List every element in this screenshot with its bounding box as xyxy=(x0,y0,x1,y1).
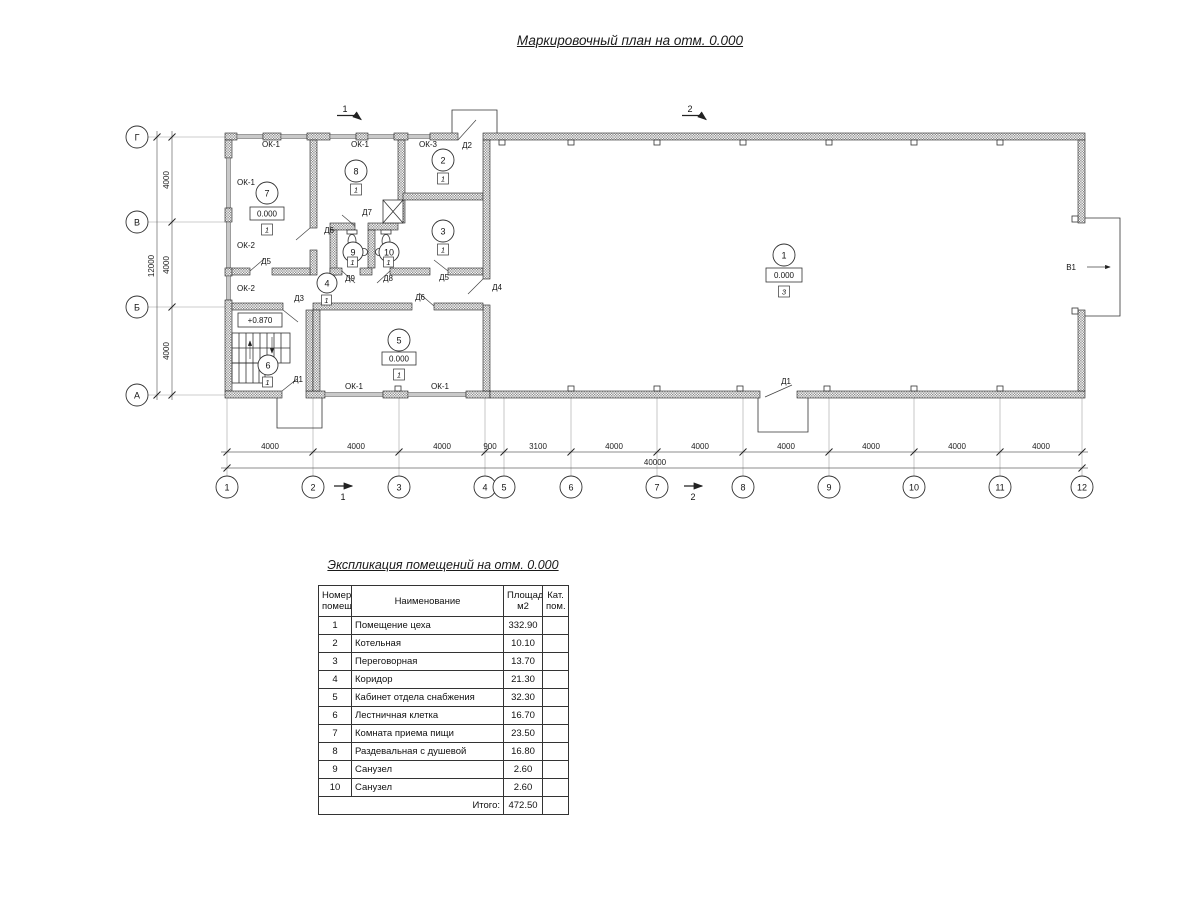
window-label-ok1: ОК-1 xyxy=(345,382,364,391)
dim-1-2: 4000 xyxy=(261,442,279,451)
dim-8-9: 4000 xyxy=(777,442,795,451)
room-area: 23.50 xyxy=(504,725,543,743)
room-name: Санузел xyxy=(352,761,504,779)
table-title: Экспликация помещений на отм. 0.000 xyxy=(318,558,568,572)
axis-5: 5 xyxy=(501,483,506,493)
door-label-d2: Д2 xyxy=(462,141,472,150)
toilet-icon xyxy=(347,230,357,234)
room-name: Помещение цеха xyxy=(352,617,504,635)
gate-b1: В1 xyxy=(1066,263,1110,272)
room-cat xyxy=(543,707,569,725)
room-cat xyxy=(543,689,569,707)
dim-11-12: 4000 xyxy=(1032,442,1050,451)
room-name: Коридор xyxy=(352,671,504,689)
axis-6: 6 xyxy=(568,483,573,493)
room-name: Котельная xyxy=(352,635,504,653)
dim-total: 40000 xyxy=(644,458,667,467)
axis-g: Г xyxy=(135,133,140,143)
room-7-elevation: 0.000 xyxy=(257,210,278,219)
porch-hall-outline xyxy=(758,398,808,432)
room-3-category: 1 xyxy=(441,246,445,255)
room-num: 3 xyxy=(319,653,352,671)
room-name: Санузел xyxy=(352,779,504,797)
room-2-category: 1 xyxy=(441,175,445,184)
table-row: 6Лестничная клетка16.70 xyxy=(319,707,569,725)
room-7-category: 1 xyxy=(265,226,269,235)
window-label-ok1: ОК-1 xyxy=(262,140,281,149)
dim-4-5: 900 xyxy=(483,442,497,451)
room-area: 2.60 xyxy=(504,779,543,797)
dim-5-6: 3100 xyxy=(529,442,547,451)
room-area: 13.70 xyxy=(504,653,543,671)
window-label-ok2: ОК-2 xyxy=(237,284,256,293)
room-4-category: 1 xyxy=(324,296,328,305)
table-row: 9Санузел2.60 xyxy=(319,761,569,779)
door-label-d6: Д6 xyxy=(324,226,334,235)
dim-2-3: 4000 xyxy=(347,442,365,451)
col-header-area: Площадь, м2 xyxy=(504,586,543,617)
room-number-6: 6 xyxy=(265,361,270,371)
table-row: 2Котельная10.10 xyxy=(319,635,569,653)
room-area: 10.10 xyxy=(504,635,543,653)
door-label-d8: Д8 xyxy=(383,274,393,283)
axis-3: 3 xyxy=(396,483,401,493)
room-name: Лестничная клетка xyxy=(352,707,504,725)
room-cat xyxy=(543,725,569,743)
door-label-d1: Д1 xyxy=(293,375,303,384)
col-header-name: Наименование xyxy=(352,586,504,617)
room-schedule-table: Номер помещ. Наименование Площадь, м2 Ка… xyxy=(318,585,569,815)
room-area: 32.30 xyxy=(504,689,543,707)
room-area: 21.30 xyxy=(504,671,543,689)
window-label-ok2: ОК-2 xyxy=(237,241,256,250)
table-row: 10Санузел2.60 xyxy=(319,779,569,797)
axis-b: Б xyxy=(134,303,140,313)
dim-7-8: 4000 xyxy=(691,442,709,451)
room-cat xyxy=(543,671,569,689)
room-num: 9 xyxy=(319,761,352,779)
room-area: 16.80 xyxy=(504,743,543,761)
room-number-3: 3 xyxy=(440,227,445,237)
room-area: 332.90 xyxy=(504,617,543,635)
door-label-d1: Д1 xyxy=(781,377,791,386)
dim-3-4: 4000 xyxy=(433,442,451,451)
axis-extension-lines xyxy=(148,137,1082,476)
door-label-d6: Д6 xyxy=(415,293,425,302)
drawing-sheet: Маркировочный план на отм. 0.000 xyxy=(0,0,1200,900)
room-number-4: 4 xyxy=(324,279,329,289)
room-cat xyxy=(543,653,569,671)
table-row: 7Комната приема пищи23.50 xyxy=(319,725,569,743)
pilasters xyxy=(395,140,1078,391)
table-header-row: Номер помещ. Наименование Площадь, м2 Ка… xyxy=(319,586,569,617)
axis-8: 8 xyxy=(740,483,745,493)
section-mark-2-top: 2 xyxy=(687,104,692,114)
room-9-category: 1 xyxy=(350,258,354,267)
room-num: 8 xyxy=(319,743,352,761)
col-header-number: Номер помещ. xyxy=(319,586,352,617)
room-cat xyxy=(543,761,569,779)
room-5-category: 1 xyxy=(397,371,401,380)
room-name: Комната приема пищи xyxy=(352,725,504,743)
room-number-7: 7 xyxy=(264,189,269,199)
room-6-category: 1 xyxy=(265,378,269,387)
room-number-10: 10 xyxy=(384,248,394,258)
room-markers: 7 0.000 1 8 1 2 1 3 1 9 1 10 1 4 1 6 1 5 xyxy=(238,149,802,387)
axis-11: 11 xyxy=(995,483,1004,493)
room-num: 2 xyxy=(319,635,352,653)
col-header-category: Кат. пом. xyxy=(543,586,569,617)
axis-1: 1 xyxy=(224,483,229,493)
window-label-ok1: ОК-1 xyxy=(237,178,256,187)
door-labels: Д1 Д1 Д2 Д3 Д4 Д5 Д5 Д6 Д6 Д7 Д8 Д9 xyxy=(261,141,791,386)
dim-g-v: 4000 xyxy=(162,171,171,189)
section-mark-1-bottom: 1 xyxy=(340,492,345,502)
floor-plan-drawing: 4000 4000 4000 900 3100 4000 4000 4000 4… xyxy=(0,0,1200,545)
dim-10-11: 4000 xyxy=(948,442,966,451)
table-row: 1Помещение цеха332.90 xyxy=(319,617,569,635)
stair-elevation: +0.870 xyxy=(248,316,273,325)
total-area: 472.50 xyxy=(504,797,543,815)
dim-6-7: 4000 xyxy=(605,442,623,451)
room-name: Кабинет отдела снабжения xyxy=(352,689,504,707)
door-label-d7: Д7 xyxy=(362,208,372,217)
axis-4: 4 xyxy=(482,483,487,493)
room-num: 10 xyxy=(319,779,352,797)
total-label: Итого: xyxy=(319,797,504,815)
room-1-elevation: 0.000 xyxy=(774,271,795,280)
room-number-9: 9 xyxy=(350,248,355,258)
table-row: 3Переговорная13.70 xyxy=(319,653,569,671)
section-mark-2-bottom: 2 xyxy=(690,492,695,502)
room-number-5: 5 xyxy=(396,336,401,346)
dim-v-b: 4000 xyxy=(162,256,171,274)
table-total-row: Итого: 472.50 xyxy=(319,797,569,815)
axis-10: 10 xyxy=(909,483,919,493)
door-label-d9: Д9 xyxy=(345,274,355,283)
room-area: 16.70 xyxy=(504,707,543,725)
room-num: 1 xyxy=(319,617,352,635)
axis-12: 12 xyxy=(1077,483,1087,493)
room-cat xyxy=(543,635,569,653)
door-label-d4: Д4 xyxy=(492,283,502,292)
axis-7: 7 xyxy=(654,483,659,493)
room-num: 4 xyxy=(319,671,352,689)
room-cat xyxy=(543,617,569,635)
room-name: Переговорная xyxy=(352,653,504,671)
room-number-8: 8 xyxy=(353,167,358,177)
room-area: 2.60 xyxy=(504,761,543,779)
room-number-1: 1 xyxy=(781,251,786,261)
axis-2: 2 xyxy=(310,483,315,493)
room-10-category: 1 xyxy=(386,258,390,267)
gate-label-b1: В1 xyxy=(1066,263,1076,272)
axis-9: 9 xyxy=(826,483,831,493)
section-mark-1-top: 1 xyxy=(342,104,347,114)
total-cat xyxy=(543,797,569,815)
table-row: 5Кабинет отдела снабжения32.30 xyxy=(319,689,569,707)
room-cat xyxy=(543,779,569,797)
door-label-d5: Д5 xyxy=(439,273,449,282)
table-row: 8Раздевальная с душевой16.80 xyxy=(319,743,569,761)
window-label-ok1: ОК-1 xyxy=(351,140,370,149)
porch-left-outline xyxy=(277,398,322,428)
room-num: 7 xyxy=(319,725,352,743)
room-num: 6 xyxy=(319,707,352,725)
room-num: 5 xyxy=(319,689,352,707)
dim-9-10: 4000 xyxy=(862,442,880,451)
window-label-ok3: ОК-3 xyxy=(419,140,438,149)
room-name: Раздевальная с душевой xyxy=(352,743,504,761)
table-row: 4Коридор21.30 xyxy=(319,671,569,689)
room-schedule: Экспликация помещений на отм. 0.000 Номе… xyxy=(318,558,568,815)
room-cat xyxy=(543,743,569,761)
dim-total-left: 12000 xyxy=(147,254,156,277)
room-8-category: 1 xyxy=(354,186,358,195)
toilet-icon xyxy=(381,230,391,234)
door-label-d5: Д5 xyxy=(261,257,271,266)
axis-v: В xyxy=(134,218,140,228)
axis-a: А xyxy=(134,391,140,401)
dim-b-a: 4000 xyxy=(162,342,171,360)
window-label-ok1: ОК-1 xyxy=(431,382,450,391)
room-number-2: 2 xyxy=(440,156,445,166)
room-5-elevation: 0.000 xyxy=(389,355,410,364)
door-label-d3: Д3 xyxy=(294,294,304,303)
